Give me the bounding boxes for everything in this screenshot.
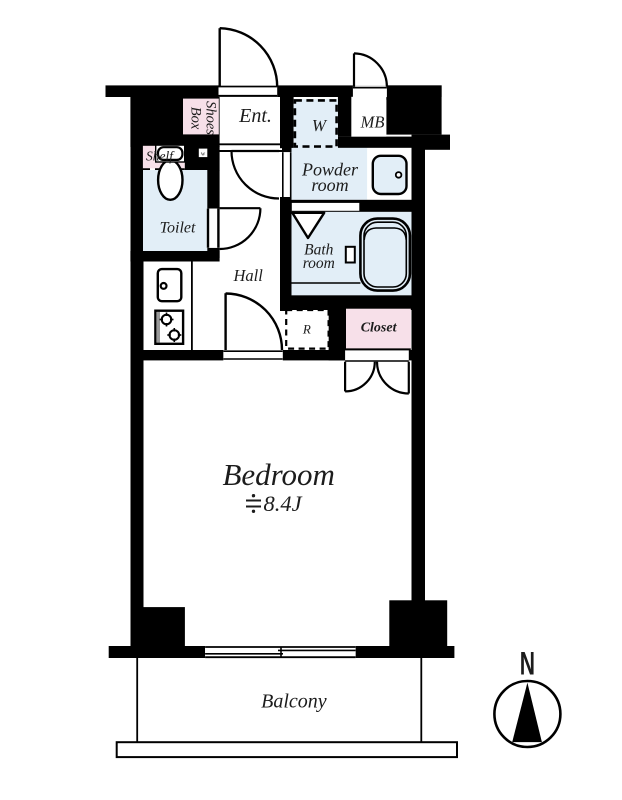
svg-text:w: w xyxy=(201,152,206,158)
svg-text:Bedroom: Bedroom xyxy=(222,457,335,492)
svg-text:Box: Box xyxy=(188,107,204,130)
svg-text:8.4J: 8.4J xyxy=(264,491,303,516)
svg-text:W: W xyxy=(312,116,328,135)
svg-text:R: R xyxy=(302,322,311,337)
svg-text:Hall: Hall xyxy=(233,266,264,285)
svg-text:Toilet: Toilet xyxy=(160,220,196,237)
svg-text:Shoes: Shoes xyxy=(203,101,219,135)
svg-text:N: N xyxy=(520,645,535,682)
svg-text:Closet: Closet xyxy=(361,321,398,336)
svg-text:room: room xyxy=(303,255,335,272)
svg-text:Ent.: Ent. xyxy=(238,105,272,127)
svg-text:room: room xyxy=(311,175,348,195)
svg-text:Balcony: Balcony xyxy=(261,691,327,713)
svg-text:MB: MB xyxy=(360,113,385,132)
svg-text:Shelf: Shelf xyxy=(146,148,175,163)
